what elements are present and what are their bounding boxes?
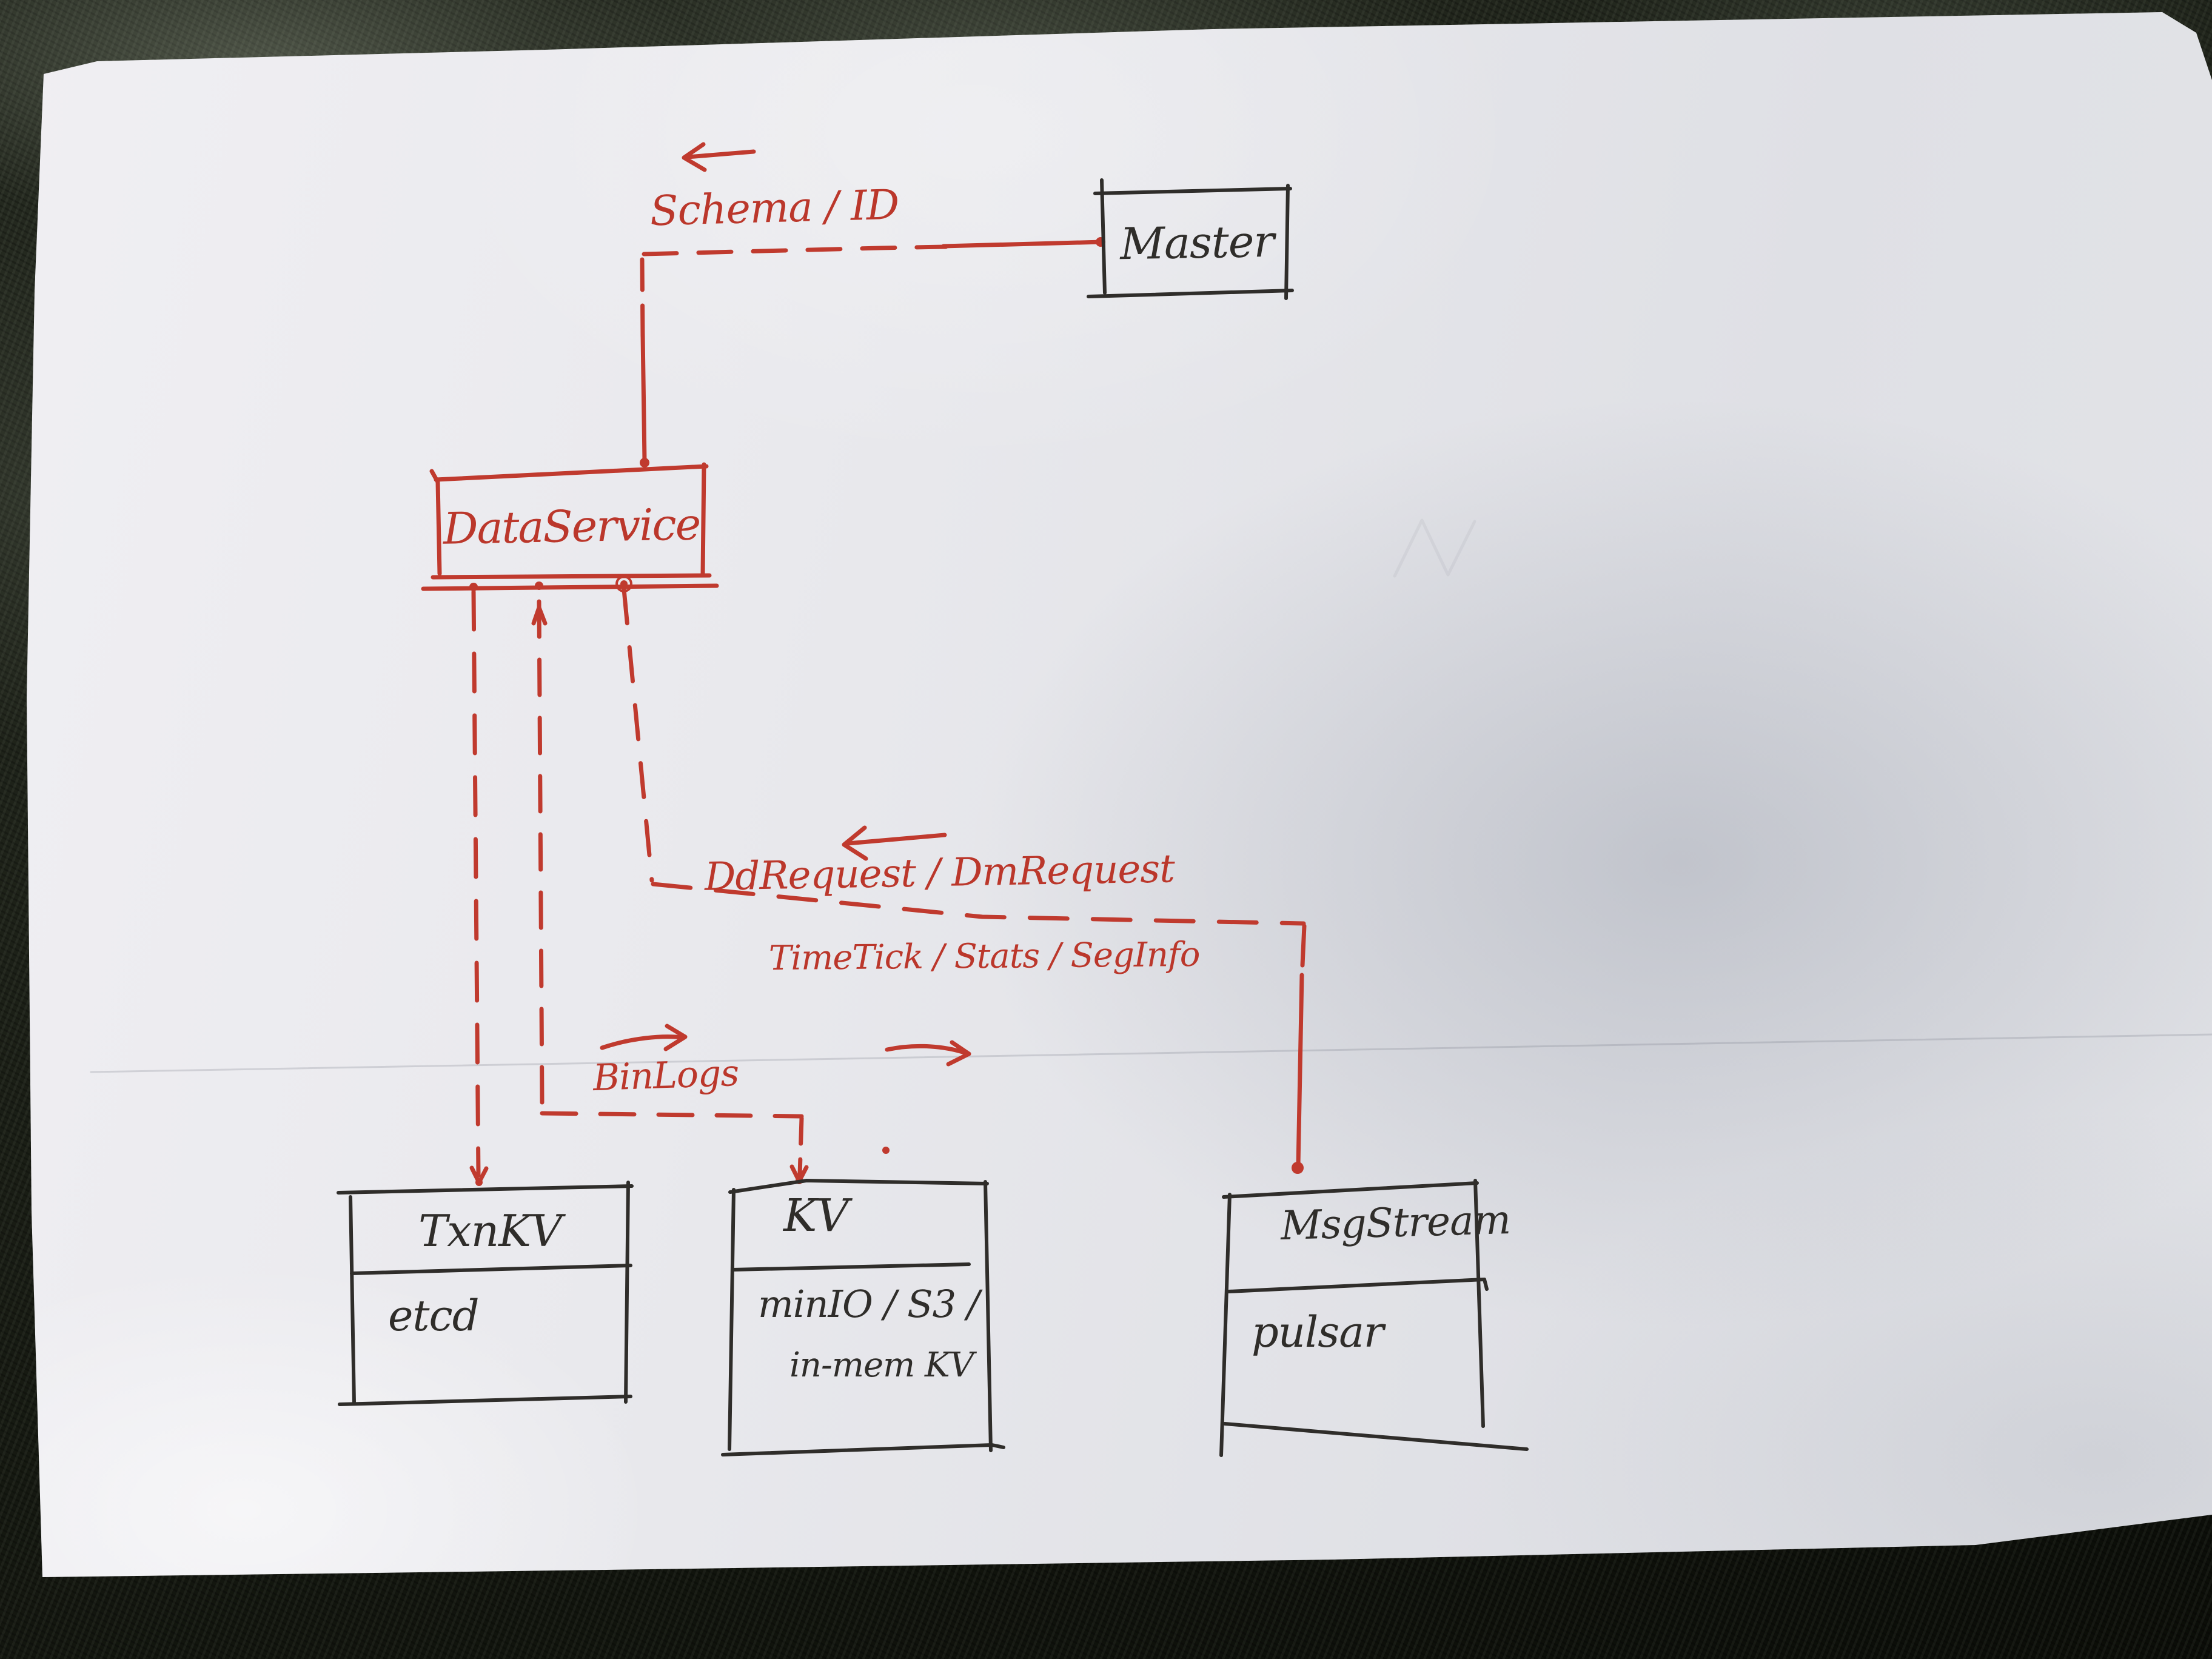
txnkv-title: TxnKV: [352, 1190, 628, 1272]
pulsar-label: pulsar: [1252, 1311, 1383, 1353]
kv-impl-line2: in-mem KV: [789, 1349, 973, 1382]
schema-flow-left-arrow-icon: [684, 144, 754, 170]
dataservice-label: DataService: [436, 474, 708, 578]
timetick-right-arrow-icon: [887, 1042, 969, 1064]
photo-of-hand-drawn-diagram: Schema / ID DataService Master DdRequest…: [0, 0, 2212, 1659]
stray-ink-dot: [882, 1147, 890, 1154]
binlogs-right-arrow-icon: [602, 1026, 685, 1049]
paper-faint-marks: [91, 520, 2212, 1072]
etcd-label: etcd: [388, 1295, 479, 1337]
master-label: Master: [1103, 189, 1292, 295]
edge-master-dataservice: [640, 237, 1105, 468]
binlogs-label: BinLogs: [592, 1055, 739, 1096]
edge-dataservice-txnkv: [472, 592, 486, 1186]
timetick-stats-seginfo-label: TimeTick / Stats / SegInfo: [769, 938, 1200, 976]
kv-impl-line1: minIO / S3 /: [758, 1285, 979, 1323]
msgstream-title: MsgStream: [1280, 1200, 1511, 1246]
ddrequest-dmrequest-label: DdRequest / DmRequest: [705, 850, 1175, 897]
schema-id-label: Schema / ID: [649, 185, 899, 233]
kv-title: KV: [783, 1193, 848, 1238]
